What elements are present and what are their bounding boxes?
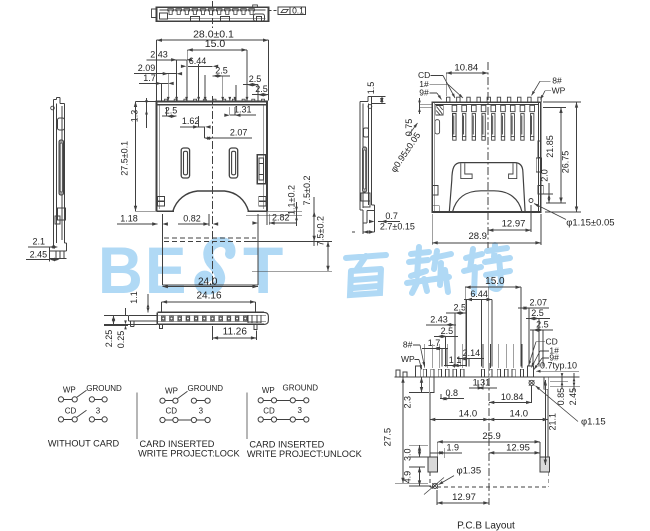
svg-text:6.44: 6.44 <box>470 289 488 299</box>
svg-text:0.1: 0.1 <box>292 5 304 15</box>
svg-text:WP: WP <box>552 85 566 95</box>
svg-text:WP: WP <box>165 387 178 396</box>
svg-text:φ1.35: φ1.35 <box>456 466 481 477</box>
svg-text:2.3: 2.3 <box>402 396 412 409</box>
svg-text:2.5: 2.5 <box>441 326 454 336</box>
svg-text:0.85: 0.85 <box>556 388 566 406</box>
svg-text:12.95: 12.95 <box>506 442 530 453</box>
svg-text:8#: 8# <box>552 76 562 86</box>
svg-text:3: 3 <box>199 406 204 415</box>
svg-text:2.5: 2.5 <box>255 84 268 94</box>
svg-text:WRITE PROJECT:UNLOCK: WRITE PROJECT:UNLOCK <box>247 449 363 459</box>
svg-text:1.5: 1.5 <box>366 82 376 95</box>
svg-text:1.9: 1.9 <box>446 442 459 452</box>
svg-text:0.8: 0.8 <box>445 388 458 398</box>
svg-text:WP: WP <box>262 386 275 395</box>
svg-text:11.26: 11.26 <box>223 326 248 337</box>
svg-text:2.7±0.15: 2.7±0.15 <box>380 222 415 232</box>
svg-text:6.44: 6.44 <box>189 56 207 66</box>
svg-text:7.5±0.2: 7.5±0.2 <box>302 176 312 206</box>
svg-text:φ1.15±0.05: φ1.15±0.05 <box>566 217 614 228</box>
svg-text:0.82: 0.82 <box>183 213 201 223</box>
svg-text:15.0: 15.0 <box>485 276 505 287</box>
svg-text:2.5: 2.5 <box>454 303 467 313</box>
svg-text:1.7: 1.7 <box>143 73 156 83</box>
svg-text:12.97: 12.97 <box>502 219 526 230</box>
svg-text:3: 3 <box>297 406 302 415</box>
svg-text:GROUND: GROUND <box>283 384 319 393</box>
svg-text:WITHOUT CARD: WITHOUT CARD <box>48 439 120 449</box>
svg-text:27.5±0.1: 27.5±0.1 <box>120 141 130 176</box>
svg-text:21.85: 21.85 <box>545 135 555 158</box>
svg-text:0.7typ.10: 0.7typ.10 <box>540 361 577 371</box>
svg-text:24.16: 24.16 <box>196 290 221 301</box>
svg-text:1.62: 1.62 <box>182 116 200 126</box>
svg-text:3.0: 3.0 <box>402 448 412 461</box>
svg-text:4.9: 4.9 <box>402 471 412 484</box>
svg-text:P.C.B Layout: P.C.B Layout <box>457 521 515 531</box>
svg-text:1.3: 1.3 <box>130 110 140 123</box>
svg-text:10.84: 10.84 <box>501 392 524 402</box>
svg-text:E: E <box>145 233 186 307</box>
svg-text:1.31: 1.31 <box>473 377 491 387</box>
svg-text:8#: 8# <box>403 339 413 349</box>
svg-text:WP: WP <box>63 386 76 395</box>
svg-text:12.97: 12.97 <box>452 492 476 503</box>
svg-text:2.45: 2.45 <box>568 388 578 406</box>
svg-text:15.0: 15.0 <box>205 38 226 50</box>
svg-text:26.75: 26.75 <box>560 151 570 174</box>
svg-text:10.84: 10.84 <box>454 63 478 74</box>
svg-text:1.7: 1.7 <box>428 338 441 348</box>
svg-text:2.07: 2.07 <box>530 298 548 308</box>
svg-text:0.25: 0.25 <box>116 331 126 349</box>
svg-text:2.09: 2.09 <box>138 63 156 73</box>
svg-text:3: 3 <box>96 406 101 415</box>
svg-text:27.5: 27.5 <box>383 428 394 447</box>
svg-text:GROUND: GROUND <box>86 384 122 393</box>
svg-text:CD: CD <box>166 407 178 416</box>
svg-text:2.07: 2.07 <box>230 128 248 138</box>
svg-text:WRITE PROJECT:LOCK: WRITE PROJECT:LOCK <box>138 448 240 458</box>
svg-text:0.7: 0.7 <box>385 211 398 221</box>
svg-text:28.9: 28.9 <box>468 231 487 242</box>
svg-text:7.5±0.2: 7.5±0.2 <box>316 216 326 246</box>
svg-text:2.5: 2.5 <box>215 65 228 75</box>
svg-text:2.43: 2.43 <box>150 49 168 59</box>
svg-text:2.1: 2.1 <box>33 236 46 246</box>
svg-text:1.1: 1.1 <box>129 291 139 304</box>
svg-text:CD: CD <box>263 407 275 416</box>
svg-text:φ1.15: φ1.15 <box>581 417 606 428</box>
svg-text:CARD INSERTED: CARD INSERTED <box>249 439 324 449</box>
svg-text:2.5: 2.5 <box>249 74 262 84</box>
svg-text:21.1: 21.1 <box>547 413 557 431</box>
svg-text:24.0: 24.0 <box>198 276 218 287</box>
svg-text:2.45: 2.45 <box>30 249 48 259</box>
svg-text:1.31: 1.31 <box>234 105 252 115</box>
svg-text:2.5: 2.5 <box>531 308 544 318</box>
svg-text:T: T <box>243 233 283 307</box>
svg-text:2.0: 2.0 <box>539 169 549 182</box>
svg-text:2.5: 2.5 <box>536 320 549 330</box>
svg-text:2.25: 2.25 <box>104 330 114 348</box>
svg-text:GROUND: GROUND <box>188 384 224 393</box>
svg-text:1.18: 1.18 <box>120 213 138 223</box>
svg-text:25.9: 25.9 <box>482 431 501 442</box>
svg-text:14.0: 14.0 <box>459 408 478 419</box>
svg-text:1.1±0.2: 1.1±0.2 <box>286 185 296 215</box>
svg-text:9#: 9# <box>419 88 429 98</box>
svg-text:WP: WP <box>401 354 415 364</box>
svg-text:2.43: 2.43 <box>430 314 448 324</box>
svg-text:14.0: 14.0 <box>510 408 529 419</box>
svg-text:CD: CD <box>65 407 77 416</box>
